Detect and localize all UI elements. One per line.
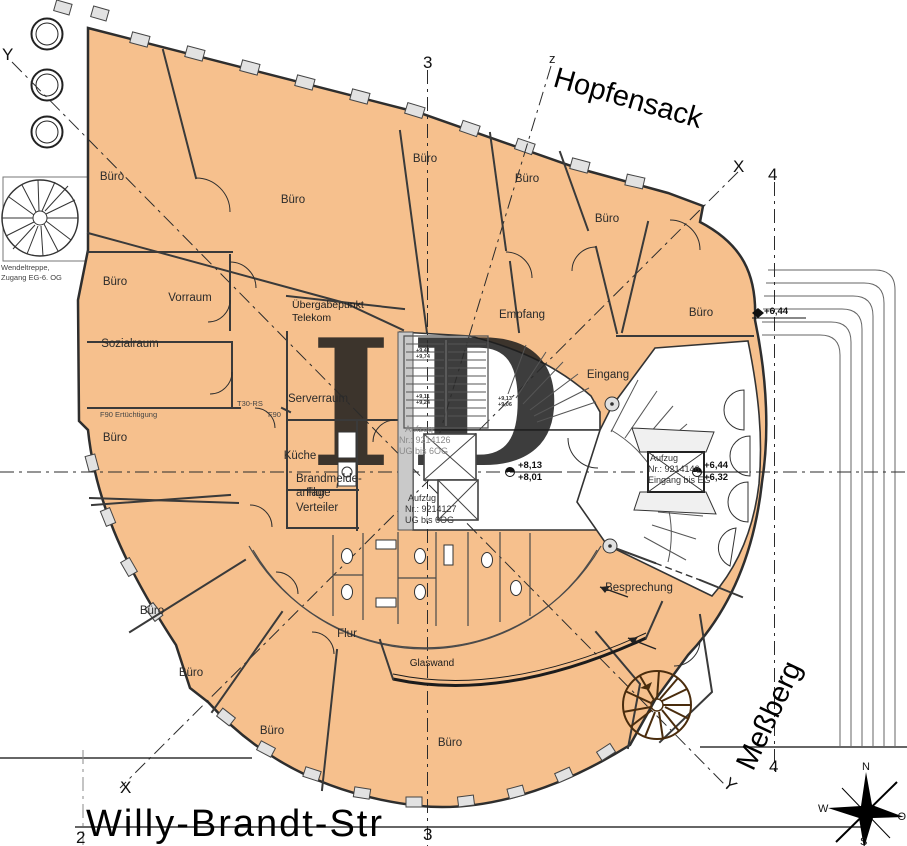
level-813: +8,13 <box>518 460 542 471</box>
room-buero-2: Büro <box>281 194 305 206</box>
stair-level-3b: +9,06 <box>498 402 512 408</box>
compass-w: W <box>818 803 829 815</box>
level-644-top: +6,44 <box>764 306 789 317</box>
room-buero-8: Büro <box>103 432 127 444</box>
lift1-l3: UG bis 6OG <box>399 446 448 456</box>
lift1-l1: Aufzug <box>405 424 433 434</box>
room-buero-6: Büro <box>689 307 713 319</box>
lift3-l3: Eingang bis EG <box>648 475 711 485</box>
f90-ertuechtigung: F90 Ertüchtigung <box>100 410 157 419</box>
street-willy-brandt: Willy-Brandt-Str <box>86 803 384 845</box>
compass-o: O <box>897 811 906 823</box>
room-buero-10: Büro <box>179 667 203 679</box>
axis-3-bottom: 3 <box>423 825 432 844</box>
axis-4-bottom: 4 <box>769 757 778 776</box>
room-vorraum: Vorraum <box>168 292 211 304</box>
room-uebergabe-l1: Übergabepunkt <box>292 299 364 311</box>
room-empfang: Empfang <box>499 309 545 321</box>
lift2-l2: Nr.: 9214127 <box>405 504 457 514</box>
room-buero-3: Büro <box>413 153 437 165</box>
axis-x-top: X <box>733 157 744 176</box>
room-brandmelde-l1: Brandmelde- <box>296 473 362 485</box>
room-buero-7: Büro <box>103 276 127 288</box>
room-besprechung: Besprechung <box>605 582 673 594</box>
lift2-l3: UG bis 6OG <box>405 515 454 525</box>
room-sozialraum: Sozialraum <box>101 338 159 350</box>
stair-level-2b: +9,24 <box>416 400 431 406</box>
lift1-l2: Nr.: 9214126 <box>399 435 451 445</box>
floor-plan-page: ID <box>0 0 907 846</box>
stair-level-1b: +9,74 <box>416 354 431 360</box>
lift2-l1: Aufzug <box>408 493 436 503</box>
compass-s: S <box>860 836 867 846</box>
compass-rose <box>828 772 904 846</box>
room-buero-5: Büro <box>595 213 619 225</box>
room-serverraum: Serverraum <box>288 393 348 405</box>
room-eingang: Eingang <box>587 369 629 381</box>
axis-4-top: 4 <box>768 165 777 184</box>
street-hopfensack: Hopfensack <box>550 62 707 135</box>
level-644: +6,44 <box>704 460 729 471</box>
room-buero-1: Büro <box>100 171 124 183</box>
level-632: +6,32 <box>704 472 728 483</box>
axis-x-bottom: X <box>120 778 131 797</box>
room-kueche: Küche <box>284 450 317 462</box>
room-brandmelde-l2: anlage <box>296 487 331 499</box>
t30-rs: T30-RS <box>237 399 263 408</box>
room-buero-11: Büro <box>260 725 284 737</box>
axis-y-bottom: Y <box>719 774 740 796</box>
glaswand-label: Glaswand <box>410 658 454 669</box>
axis-z-top: z <box>549 51 556 66</box>
level-801: +8,01 <box>518 472 543 483</box>
room-uebergabe-l2: Telekom <box>292 312 331 324</box>
lift3-l2: Nr.: 9214146 <box>648 464 700 474</box>
f90: F90 <box>268 410 281 419</box>
compass-n: N <box>862 761 870 773</box>
wendeltreppe-l2: Zugang EG-6. OG <box>1 273 62 282</box>
lift3-l1: Aufzug <box>650 453 678 463</box>
axis-y-top: Y <box>2 45 13 64</box>
room-flur-1: Flur <box>337 628 357 640</box>
room-buero-4: Büro <box>515 173 539 185</box>
room-verteiler: Verteiler <box>296 502 338 514</box>
room-buero-9: Büro <box>140 605 164 617</box>
floor-plan-drawing: ID <box>0 0 907 846</box>
room-buero-12: Büro <box>438 737 462 749</box>
wendeltreppe-l1: Wendeltreppe, <box>1 263 50 272</box>
axis-2-bottom: 2 <box>76 828 85 846</box>
axis-3-top: 3 <box>423 53 432 72</box>
